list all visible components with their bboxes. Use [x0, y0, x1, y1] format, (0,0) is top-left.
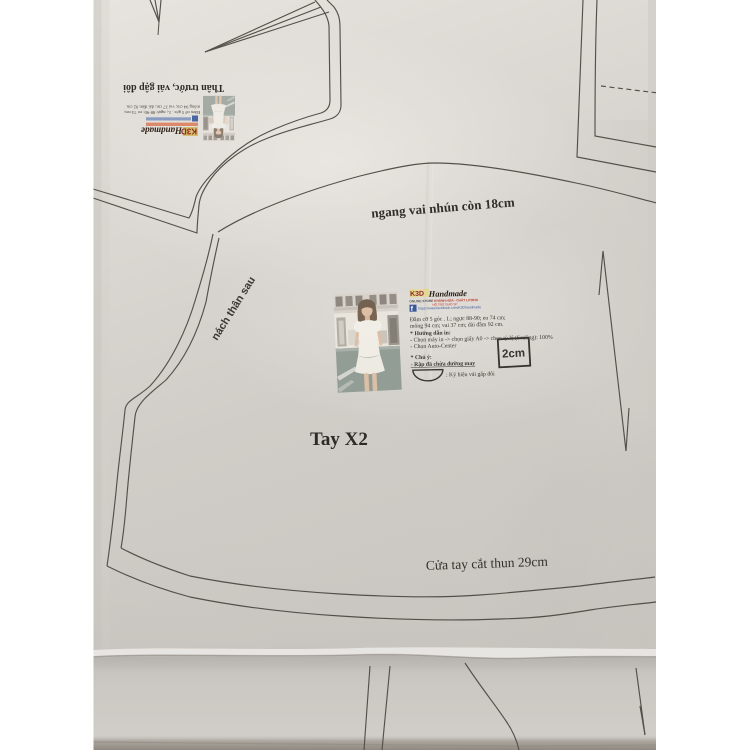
svg-text:Handmade: Handmade	[141, 126, 183, 136]
svg-text:Đầm cỡ 5 góc . L; ngực 88-90;: Đầm cỡ 5 góc . L; ngực 88-90; eo 74 cm;	[124, 110, 200, 115]
svg-text:: Ký hiệu vải gấp đôi: : Ký hiệu vải gấp đôi	[446, 370, 495, 378]
svg-text:mông 94 cm; vai 37 cm; dài đầm: mông 94 cm; vai 37 cm; dài đầm 92 cm.	[126, 105, 200, 110]
svg-text:Thân trước, vải gập đôi: Thân trước, vải gập đôi	[123, 82, 224, 93]
svg-text:2cm: 2cm	[502, 347, 526, 360]
svg-text:K3D: K3D	[181, 127, 197, 136]
svg-text:Tay X2: Tay X2	[310, 429, 368, 450]
svg-text:* Chú ý:: * Chú ý:	[411, 355, 432, 361]
svg-text:- Chọn Auto-Center: - Chọn Auto-Center	[410, 343, 456, 350]
svg-text:K3D: K3D	[410, 291, 424, 298]
